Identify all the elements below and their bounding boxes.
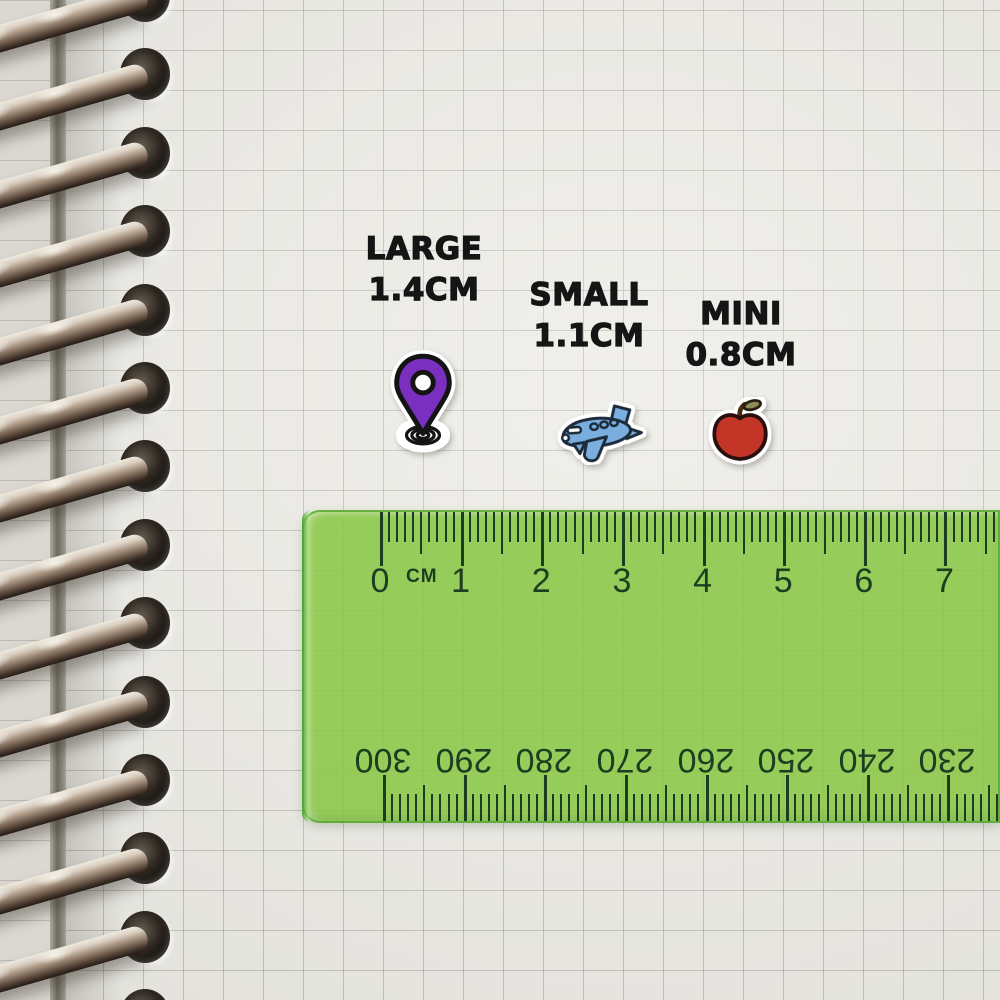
ruler-tick: [428, 512, 430, 542]
size-value: 0.8CM: [651, 335, 831, 376]
ruler-tick: [399, 794, 401, 821]
ruler-tick: [719, 512, 721, 542]
photo-scene: LARGE 1.4CM SMALL 1.1CM MINI 0.8CM: [0, 0, 1000, 1000]
ruler-tick: [439, 794, 441, 821]
ruler-tick: [920, 512, 922, 542]
ruler-tick: [912, 512, 914, 542]
ruler-tick: [396, 512, 398, 542]
ruler-unit-label: CM: [406, 566, 438, 588]
ruler-tick: [799, 512, 801, 542]
ruler-tick: [404, 512, 406, 542]
ruler-tick: [703, 512, 706, 566]
ruler-mm-number: 250: [758, 740, 815, 779]
ruler-tick: [711, 512, 713, 542]
ruler-tick: [888, 512, 890, 542]
ruler-tick: [681, 794, 683, 821]
ruler-tick: [686, 512, 688, 542]
ruler-tick: [923, 794, 925, 821]
ruler-tick: [832, 512, 834, 542]
ruler-tick: [493, 512, 495, 542]
ruler-tick: [649, 794, 651, 821]
ruler-cm-number: 7: [935, 562, 954, 601]
ruler-tick: [517, 512, 519, 542]
apple-body-icon: [714, 415, 765, 459]
ruler-tick: [557, 512, 559, 542]
ruler-tick: [565, 512, 567, 542]
ruler-mm-number: 270: [597, 740, 654, 779]
ruler-tick: [896, 512, 898, 542]
ruler-tick: [931, 794, 933, 821]
ruler-mm-number: 230: [919, 740, 976, 779]
ruler-mm-number: 280: [516, 740, 573, 779]
ruler-tick: [827, 785, 829, 821]
ruler-tick: [907, 785, 909, 821]
ruler-tick: [560, 794, 562, 821]
ruler-tick: [883, 794, 885, 821]
ruler-tick: [585, 785, 587, 821]
ruler-cm-number: 1: [451, 562, 470, 601]
ruler-mm-number: 260: [677, 740, 734, 779]
ruler-tick: [697, 794, 699, 821]
ruler-tick: [791, 512, 793, 542]
ruler-tick: [778, 794, 780, 821]
ruler-tick: [641, 794, 643, 821]
ruler-tick: [988, 785, 990, 821]
ruler-tick: [528, 794, 530, 821]
ruler-tick: [646, 512, 648, 542]
pin-hole-icon: [413, 372, 434, 393]
ruler-tick: [488, 794, 490, 821]
ruler-tick: [509, 512, 511, 542]
ruler-tick: [496, 794, 498, 821]
cockpit-window-icon: [567, 427, 581, 434]
ruler-tick: [840, 512, 842, 542]
ruler-tick: [383, 775, 386, 821]
ruler-tick: [601, 794, 603, 821]
ruler-tick: [867, 775, 870, 821]
ruler-tick: [541, 512, 544, 566]
ruler-tick: [388, 512, 390, 542]
ruler-tick: [939, 794, 941, 821]
ruler-tick: [985, 512, 987, 554]
ruler-tick: [598, 512, 600, 542]
ruler-tick: [407, 794, 409, 821]
ruler-tick: [794, 794, 796, 821]
ruler-tick: [654, 512, 656, 542]
ruler-tick: [614, 512, 616, 542]
ruler-tick: [904, 512, 906, 554]
ruler-tick: [928, 512, 930, 542]
ruler-cm-number: 5: [774, 562, 793, 601]
ruler-tick: [843, 794, 845, 821]
ruler-tick: [714, 794, 716, 821]
ruler-tick: [956, 794, 958, 821]
ruler-tick: [549, 512, 551, 542]
ruler-tick: [944, 512, 947, 566]
size-label-mini: MINI 0.8CM: [651, 294, 831, 376]
ruler-tick: [448, 794, 450, 821]
ruler-tick: [996, 794, 998, 821]
ruler-tick: [423, 785, 425, 821]
ruler-tick: [730, 794, 732, 821]
ruler-tick: [436, 512, 438, 542]
ruler-tick: [802, 794, 804, 821]
size-value: 1.4CM: [334, 270, 514, 311]
ruler-tick: [593, 794, 595, 821]
ruler-tick: [851, 794, 853, 821]
ruler-tick: [815, 512, 817, 542]
ruler-tick: [657, 794, 659, 821]
apple-sticker: [707, 397, 775, 470]
ruler-tick: [485, 512, 487, 542]
ruler-tick: [810, 794, 812, 821]
ruler-tick: [665, 785, 667, 821]
ruler-tick: [420, 512, 422, 554]
ruler-tick: [412, 512, 414, 542]
ruler-tick: [544, 775, 547, 821]
ruler-tick: [864, 512, 867, 566]
ruler-tick: [835, 794, 837, 821]
ruler-tick: [456, 794, 458, 821]
ruler-tick: [738, 794, 740, 821]
ruler-tick: [751, 512, 753, 542]
ruler-cm-number: 4: [693, 562, 712, 601]
ruler-tick: [453, 512, 455, 542]
ruler-tick: [818, 794, 820, 821]
ruler-tick: [936, 512, 938, 542]
ruler-tick: [735, 512, 737, 542]
ruler-tick: [915, 794, 917, 821]
ruler-tick: [590, 512, 592, 542]
ruler-tick: [743, 512, 745, 554]
ruler-tick: [754, 794, 756, 821]
ruler-tick: [722, 794, 724, 821]
ruler-tick: [582, 512, 584, 554]
ruler-tick: [953, 512, 955, 542]
ruler-tick: [891, 794, 893, 821]
ruler-mm-number: 300: [355, 740, 412, 779]
ruler-tick: [617, 794, 619, 821]
ruler-tick: [678, 512, 680, 542]
ruler-tick: [477, 512, 479, 542]
location-pin-sticker: [386, 341, 460, 462]
ruler-tick: [662, 512, 664, 554]
ruler-tick: [445, 512, 447, 542]
ruler-tick: [633, 794, 635, 821]
ruler-tick: [872, 512, 874, 542]
ruler: CM 01234567 300290280270260250240230: [302, 510, 1000, 823]
ruler-tick: [947, 775, 950, 821]
ruler-tick: [391, 794, 393, 821]
ruler-tick: [568, 794, 570, 821]
ruler-tick: [980, 794, 982, 821]
ruler-tick: [856, 512, 858, 542]
ruler-tick: [969, 512, 971, 542]
ruler-tick: [880, 512, 882, 542]
ruler-tick: [689, 794, 691, 821]
ruler-tick: [536, 794, 538, 821]
ruler-tick: [770, 794, 772, 821]
paper-edge-shadow: [66, 0, 124, 1000]
notebook-spine-edge: [50, 0, 66, 1000]
ruler-tick: [415, 794, 417, 821]
ruler-mm-number: 240: [838, 740, 895, 779]
ruler-tick: [977, 512, 979, 542]
ruler-tick: [762, 794, 764, 821]
grid-paper: [0, 0, 1000, 1000]
ruler-tick: [606, 512, 608, 542]
size-label-large: LARGE 1.4CM: [334, 229, 514, 311]
ruler-cm-number: 3: [612, 562, 631, 601]
ruler-tick: [961, 512, 963, 542]
ruler-cm-number: 2: [532, 562, 551, 601]
ruler-tick: [533, 512, 535, 542]
ruler-tick: [520, 794, 522, 821]
ruler-tick: [775, 512, 777, 542]
ruler-tick: [727, 512, 729, 542]
ruler-tick: [993, 512, 995, 542]
ruler-tick: [480, 794, 482, 821]
ruler-tick: [824, 512, 826, 554]
ruler-tick: [609, 794, 611, 821]
ruler-tick: [431, 794, 433, 821]
ruler-tick: [469, 512, 471, 542]
ruler-tick: [525, 512, 527, 542]
ruler-mm-number: 290: [435, 740, 492, 779]
ruler-tick: [512, 794, 514, 821]
ruler-tick: [461, 512, 464, 566]
ruler-tick: [577, 794, 579, 821]
ruler-tick: [875, 794, 877, 821]
ruler-tick: [759, 512, 761, 542]
ruler-tick: [552, 794, 554, 821]
ruler-cm-number: 0: [371, 562, 390, 601]
nose-light-icon: [562, 434, 569, 441]
ruler-tick: [504, 785, 506, 821]
ruler-tick: [807, 512, 809, 542]
ruler-tick: [622, 512, 625, 566]
ruler-tick: [859, 794, 861, 821]
ruler-tick: [472, 794, 474, 821]
ruler-tick: [899, 794, 901, 821]
ruler-cm-number: 6: [854, 562, 873, 601]
ruler-tick: [670, 512, 672, 542]
ruler-tick: [786, 775, 789, 821]
ruler-tick: [848, 512, 850, 542]
size-name: MINI: [651, 294, 831, 335]
ruler-tick: [694, 512, 696, 542]
ruler-tick: [638, 512, 640, 542]
ruler-tick: [625, 775, 628, 821]
ruler-tick: [783, 512, 786, 566]
ruler-tick: [964, 794, 966, 821]
ruler-tick: [706, 775, 709, 821]
ruler-tick: [972, 794, 974, 821]
ruler-tick: [673, 794, 675, 821]
ruler-tick: [380, 512, 383, 566]
size-name: LARGE: [334, 229, 514, 270]
ruler-tick: [501, 512, 503, 554]
ruler-tick: [767, 512, 769, 542]
ruler-tick: [464, 775, 467, 821]
airplane-sticker: [554, 397, 650, 467]
under-page-edge: [0, 0, 56, 1000]
ruler-tick: [746, 785, 748, 821]
ruler-tick: [574, 512, 576, 542]
ruler-tick: [630, 512, 632, 542]
